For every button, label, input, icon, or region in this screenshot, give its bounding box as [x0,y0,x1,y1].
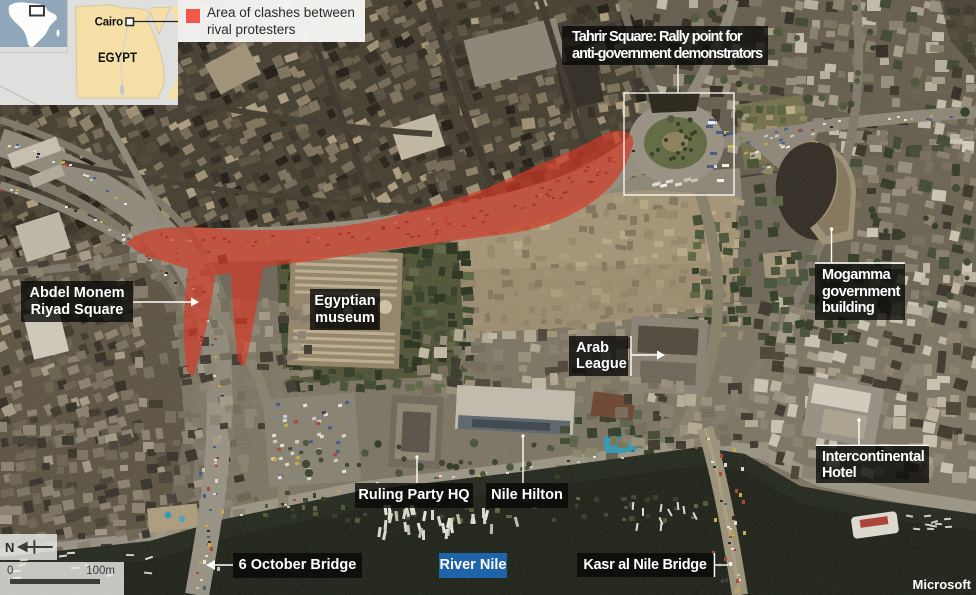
svg-text:EGYPT: EGYPT [98,50,138,65]
svg-text:Cairo: Cairo [95,17,124,29]
